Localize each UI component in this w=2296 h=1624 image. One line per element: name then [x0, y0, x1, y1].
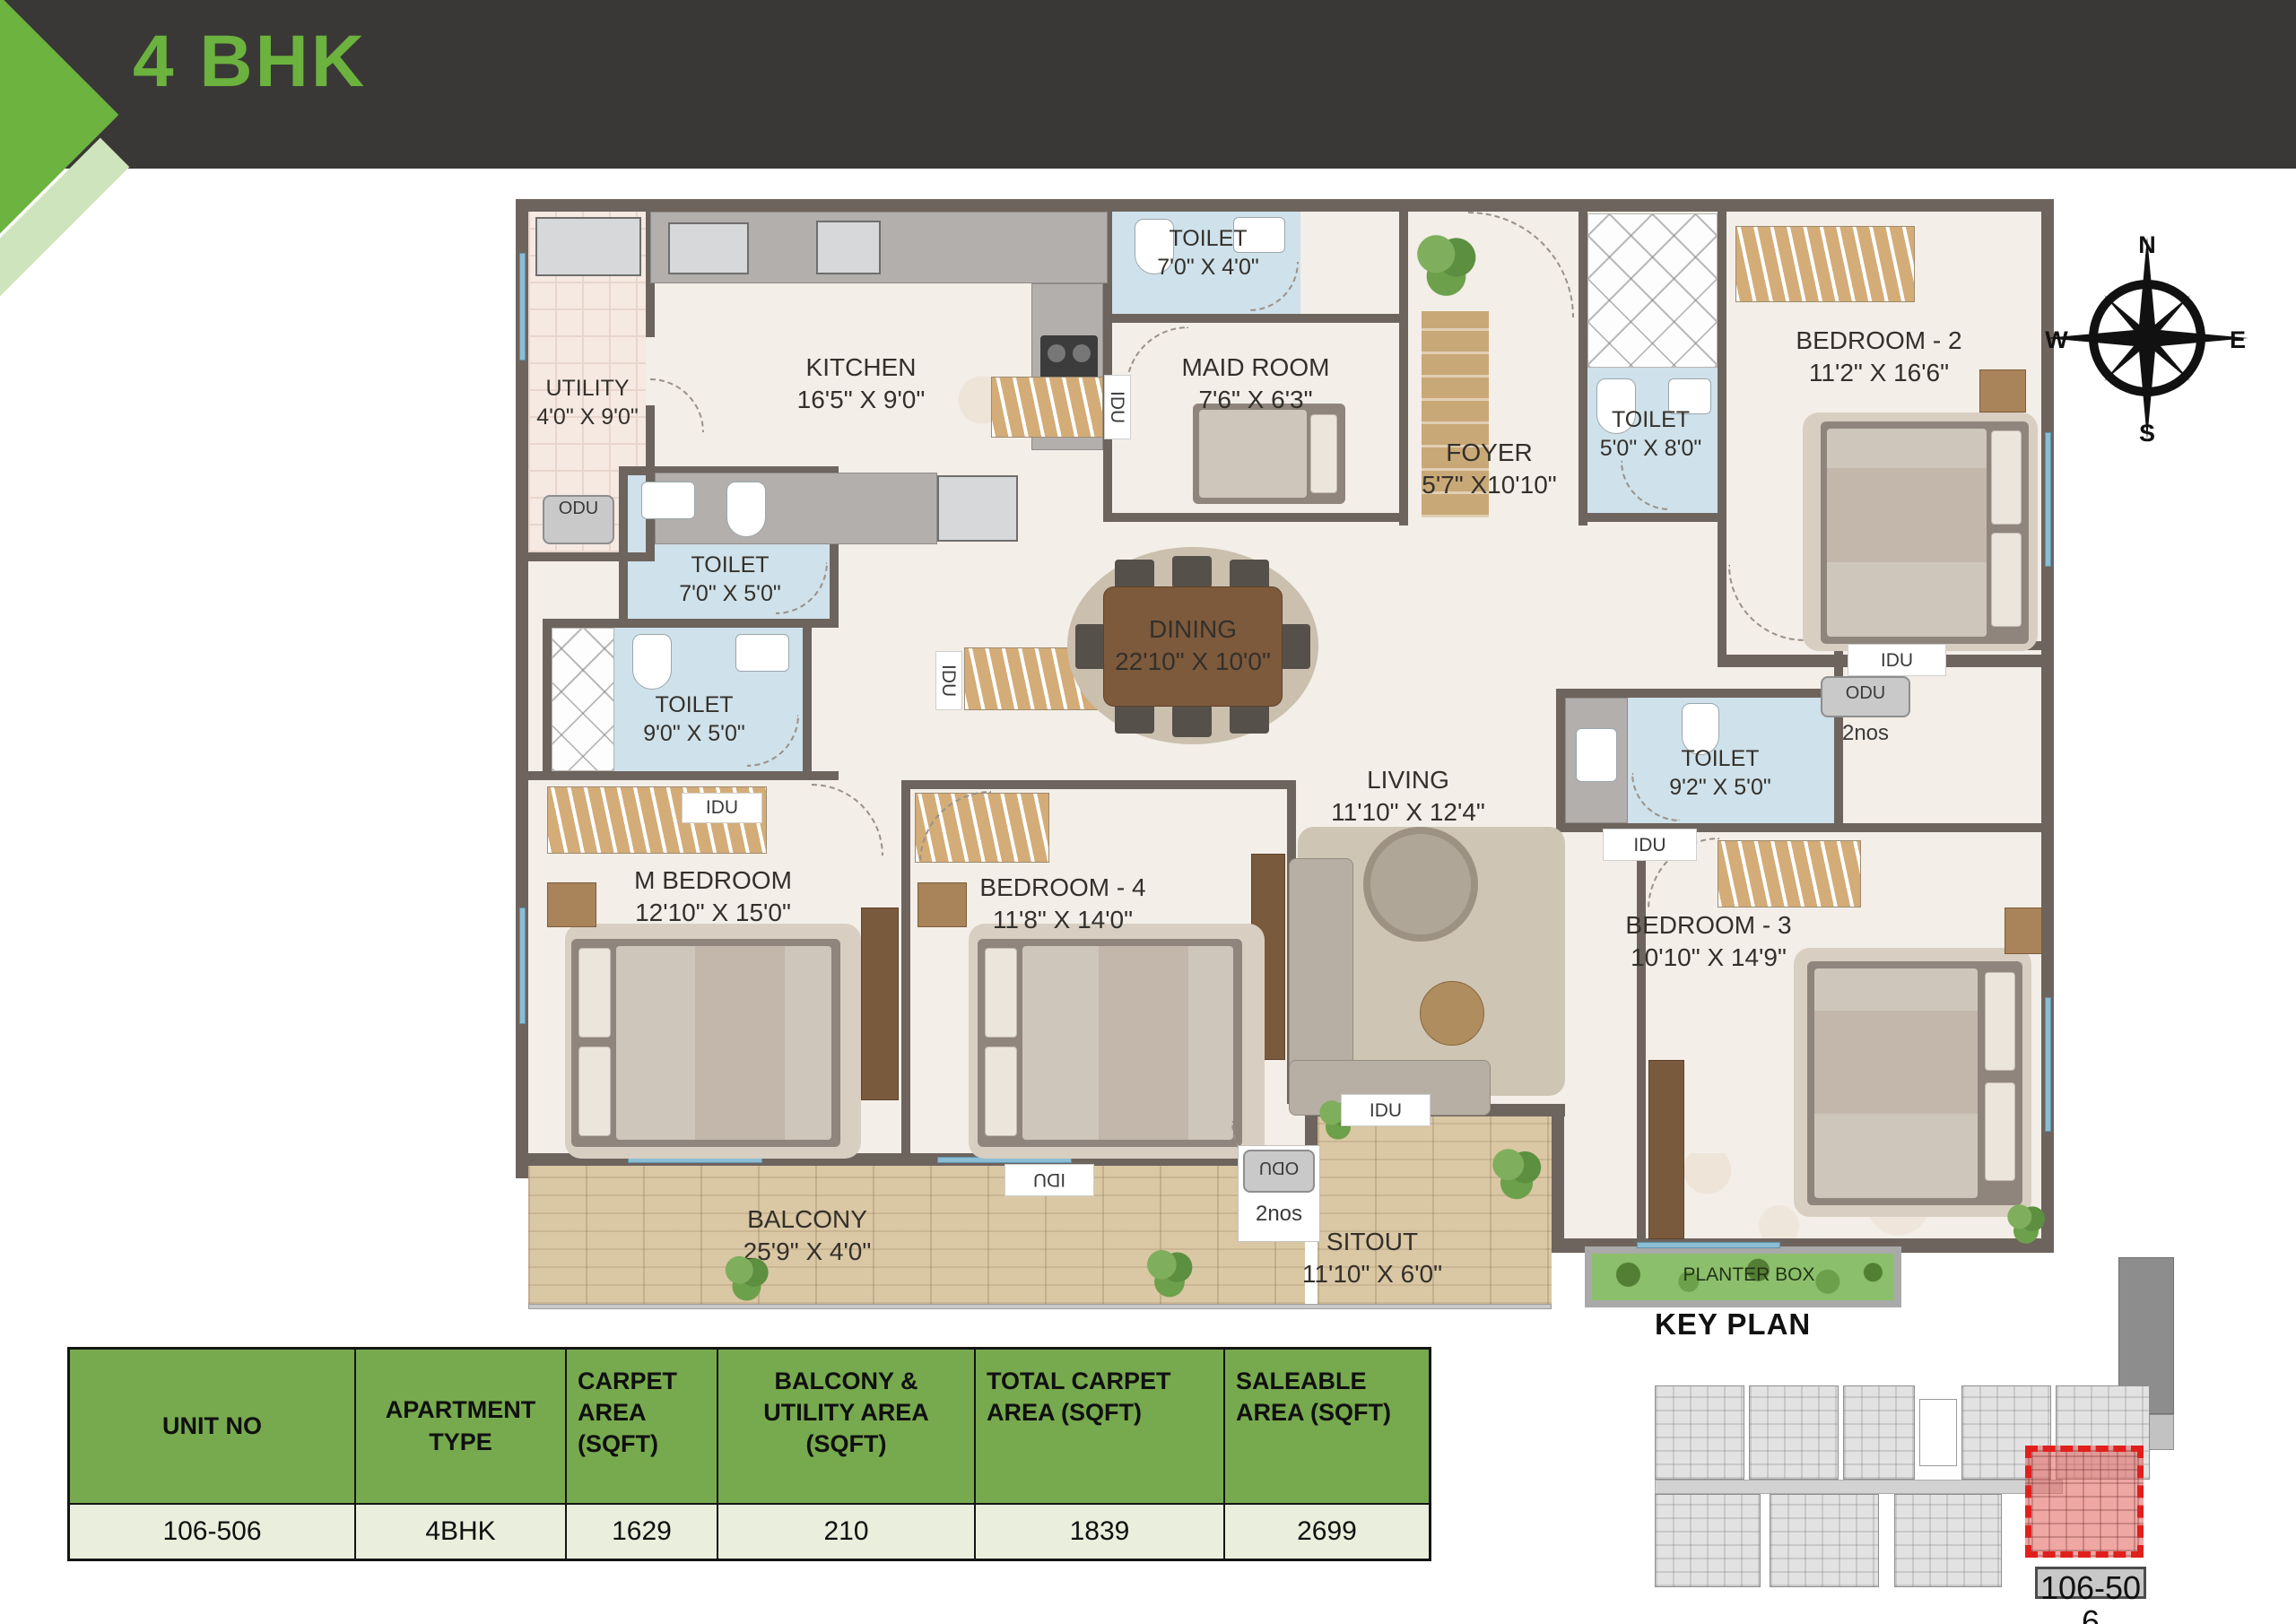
room-label-toilet3: TOILET7'0" X 5'0": [628, 551, 832, 608]
keyplan-unit: [1843, 1385, 1915, 1480]
bed-blanket: [1099, 946, 1188, 1140]
wall: [1112, 314, 1399, 323]
dining-chair: [1172, 705, 1212, 737]
room-label-toilet4: TOILET9'0" X 5'0": [592, 690, 796, 748]
coffee-table: [1420, 981, 1484, 1046]
odu-tag: ODU: [1821, 683, 1910, 704]
room-label-toilet2: TOILET5'0" X 8'0": [1581, 405, 1720, 463]
compass-s: S: [2129, 420, 2165, 447]
col-carpet-area: CARPET AREA (SQFT): [566, 1349, 717, 1505]
keyplan-unit: [1655, 1385, 1744, 1480]
idu-tag: IDU: [1603, 829, 1697, 861]
odu-tag: ODU: [1238, 1157, 1320, 1177]
burner-icon: [1048, 344, 1065, 362]
room-label-balcony: BALCONY25'9" X 4'0": [650, 1203, 964, 1268]
keyplan-highlighted-unit: [2025, 1446, 2144, 1558]
kitchen-sink-icon: [816, 221, 881, 274]
wc-icon: [726, 482, 766, 537]
wardrobe: [1718, 840, 1861, 908]
wall: [1556, 689, 1843, 698]
compass-w: W: [2039, 326, 2074, 354]
wc-icon: [632, 634, 672, 690]
wall: [803, 619, 812, 780]
idu-tag: IDU: [935, 651, 962, 710]
plant-icon: [1489, 1145, 1544, 1201]
wall: [1556, 823, 1843, 832]
cell-unit-no: 106-506: [69, 1504, 356, 1560]
wall: [1552, 1104, 1564, 1238]
wall: [1556, 689, 1565, 832]
dresser: [1648, 1060, 1684, 1239]
keyplan: 106-506: [1650, 1251, 2188, 1624]
plant-icon: [722, 1253, 771, 1302]
table-value-row: 106-506 4BHK 1629 210 1839 2699: [69, 1504, 1431, 1560]
table-header-row: UNIT NO APARTMENT TYPE CARPET AREA (SQFT…: [69, 1349, 1431, 1505]
room-label-kitchen: KITCHEN16'5" X 9'0": [704, 352, 1018, 416]
room-label-bedroom2: BEDROOM - 211'2" X 16'6": [1731, 325, 2027, 389]
bed-pillow: [1991, 533, 2022, 627]
room-label-bedroom4: BEDROOM - 411'8" X 14'0": [906, 872, 1220, 936]
kitchen-counter-bottom: [655, 473, 937, 544]
cell-carpet-area: 1629: [566, 1504, 717, 1560]
room-label-mbedroom: M BEDROOM12'10" X 15'0": [556, 864, 870, 929]
room-label-bedroom3: BEDROOM - 310'10" X 14'9": [1552, 909, 1865, 974]
idu-tag: IDU: [1341, 1094, 1431, 1126]
compass: N S W E: [2044, 235, 2250, 441]
cell-apartment-type: 4BHK: [355, 1504, 566, 1560]
col-apartment-type: APARTMENT TYPE: [355, 1349, 566, 1505]
keyplan-unit: [1749, 1385, 1839, 1480]
wall: [543, 619, 839, 628]
idu-tag: IDU: [1848, 644, 1946, 676]
plant-icon: [2005, 1202, 2048, 1245]
compass-e: E: [2220, 326, 2256, 354]
maid-bed-mattress: [1199, 410, 1307, 498]
window: [2045, 997, 2051, 1132]
keyplan-unit: [1770, 1494, 1879, 1587]
room-label-foyer: FOYER5'7" X10'10": [1402, 437, 1577, 501]
odu-tag: ODU: [552, 497, 605, 520]
window: [2045, 432, 2051, 567]
balcony-railing: [528, 1304, 1552, 1309]
chevron-shadow: [0, 138, 129, 358]
room-label-toilet1: TOILET7'0" X 4'0": [1118, 224, 1298, 282]
window: [519, 253, 526, 360]
room-label-maidroom: MAID ROOM7'6" X 6'3": [1112, 352, 1399, 416]
wall: [901, 780, 1296, 789]
compass-n: N: [2129, 231, 2165, 259]
cell-total-carpet-area: 1839: [975, 1504, 1224, 1560]
keyplan-unit: [1655, 1494, 1761, 1587]
keyplan-core: [1919, 1399, 1957, 1466]
wall: [528, 771, 839, 780]
utility-sink-icon: [535, 217, 641, 276]
idu-tag: IDU: [1104, 375, 1131, 439]
dresser: [861, 908, 899, 1100]
page-title: 4 BHK: [133, 20, 761, 136]
floorplan: UTILITY4'0" X 9'0" KITCHEN16'5" X 9'0" T…: [516, 199, 2054, 1314]
bed-blanket: [695, 946, 785, 1140]
wall: [543, 619, 552, 780]
wall: [901, 780, 910, 1153]
room-label-dining: DINING22'10" X 10'0": [1054, 613, 1332, 678]
bed-pillow: [985, 948, 1017, 1038]
cell-balcony-utility-area: 210: [717, 1504, 975, 1560]
dishwasher-icon: [937, 475, 1018, 542]
wall: [1103, 513, 1408, 522]
bed-pillow: [578, 948, 611, 1038]
maid-bed-pillow: [1310, 414, 1337, 493]
window: [1637, 1242, 1780, 1248]
nightstand: [2005, 908, 2042, 954]
wall: [1578, 212, 1587, 525]
planter-wall: [1585, 1246, 1592, 1307]
bed-pillow: [1985, 1082, 2015, 1181]
window: [519, 908, 526, 1024]
wardrobe: [1735, 226, 1915, 302]
bed-pillow: [1985, 972, 2015, 1071]
basin-icon: [641, 482, 695, 519]
sofa: [1289, 858, 1353, 1091]
dining-chair: [1172, 556, 1212, 588]
wall: [516, 199, 2054, 212]
bed-pillow: [578, 1046, 611, 1136]
bed-pillow: [1991, 430, 2022, 525]
bed-blanket: [1814, 1011, 1978, 1114]
odu-qty: 2nos: [1821, 721, 1910, 746]
bed-pillow: [985, 1046, 1017, 1136]
wall: [1637, 832, 1646, 1238]
lounge-chair: [1363, 827, 1478, 942]
bed-blanket: [1827, 468, 1987, 562]
page: 4 BHK: [0, 0, 2296, 1624]
idu-tag: IDU: [682, 793, 762, 823]
keyplan-unit: [1894, 1494, 2002, 1587]
cell-saleable-area: 2699: [1224, 1504, 1431, 1560]
wall: [1578, 513, 1726, 522]
odu-qty: 2nos: [1238, 1202, 1320, 1227]
kitchen-sink-icon: [668, 222, 749, 274]
toilet2-shower: [1587, 213, 1718, 368]
keyplan-unit-label: 106-506: [2035, 1567, 2146, 1599]
room-label-living: LIVING11'10" X 12'4": [1260, 764, 1556, 829]
room-label-toilet5: TOILET9'2" X 5'0": [1608, 744, 1832, 802]
basin-icon: [735, 634, 789, 672]
col-total-carpet-area: TOTAL CARPET AREA (SQFT): [975, 1349, 1224, 1505]
idu-tag: IDU: [1004, 1164, 1094, 1196]
burner-icon: [1073, 344, 1091, 362]
plant-icon: [1144, 1246, 1196, 1298]
col-balcony-utility-area: BALCONY & UTILITY AREA (SQFT): [717, 1349, 975, 1505]
keyplan-corridor: [1655, 1480, 2063, 1494]
area-statement-table: UNIT NO APARTMENT TYPE CARPET AREA (SQFT…: [67, 1347, 1431, 1561]
col-unit-no: UNIT NO: [69, 1349, 356, 1505]
room-label-utility: UTILITY4'0" X 9'0": [525, 374, 650, 431]
col-saleable-area: SALEABLE AREA (SQFT): [1224, 1349, 1431, 1505]
wall: [619, 466, 628, 628]
